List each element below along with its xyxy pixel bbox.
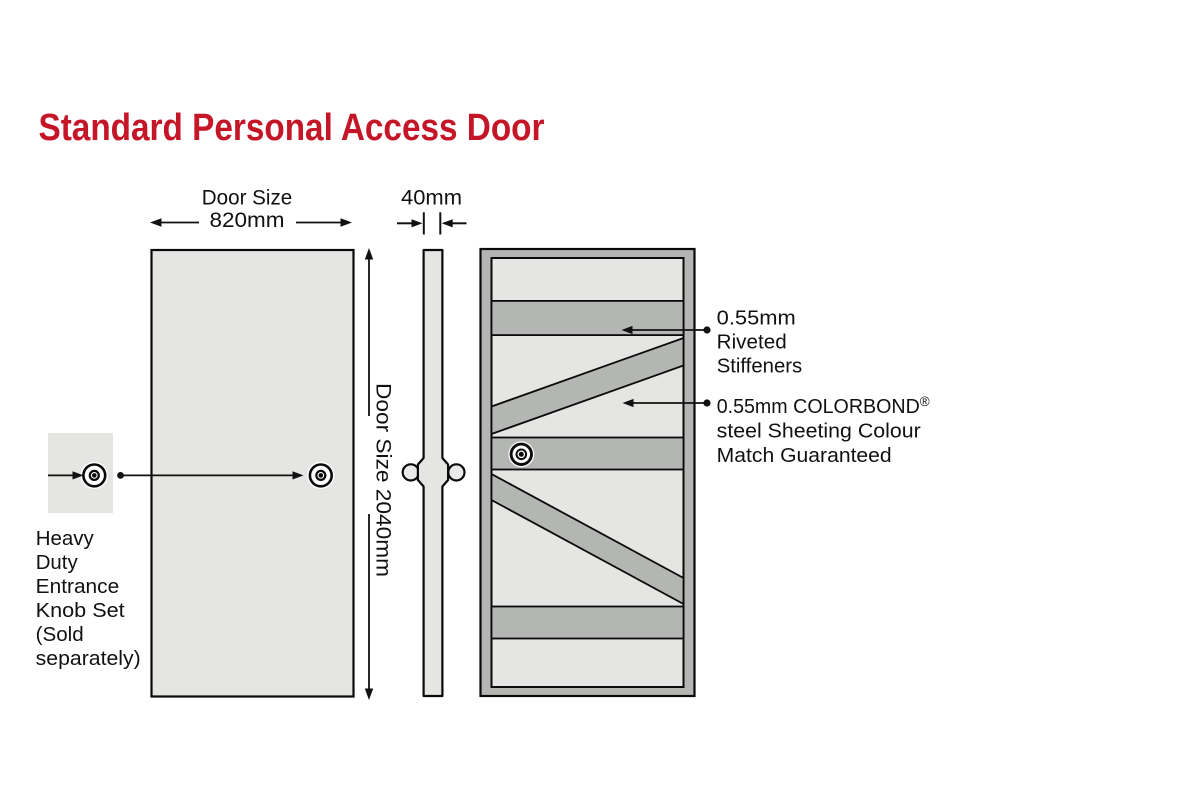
svg-text:Stiffeners: Stiffeners [717, 355, 803, 378]
svg-text:0.55mm COLORBOND®: 0.55mm COLORBOND® [717, 393, 931, 418]
svg-text:Knob Set: Knob Set [36, 599, 125, 622]
svg-text:820mm: 820mm [210, 209, 285, 232]
svg-text:Duty: Duty [36, 551, 79, 574]
svg-text:(Sold: (Sold [36, 623, 84, 646]
svg-text:Riveted: Riveted [717, 331, 787, 354]
svg-text:Match Guaranteed: Match Guaranteed [717, 444, 892, 467]
svg-text:Door Size: Door Size [202, 187, 292, 210]
svg-text:Entrance: Entrance [36, 575, 120, 598]
svg-text:Heavy: Heavy [36, 527, 95, 550]
svg-text:40mm: 40mm [401, 187, 462, 210]
svg-text:Door Size 2040mm: Door Size 2040mm [372, 383, 395, 577]
svg-text:0.55mm: 0.55mm [717, 307, 796, 330]
svg-text:steel Sheeting Colour: steel Sheeting Colour [717, 420, 921, 443]
svg-text:separately): separately) [36, 647, 141, 670]
svg-text:Standard Personal Access Door: Standard Personal Access Door [39, 107, 545, 149]
